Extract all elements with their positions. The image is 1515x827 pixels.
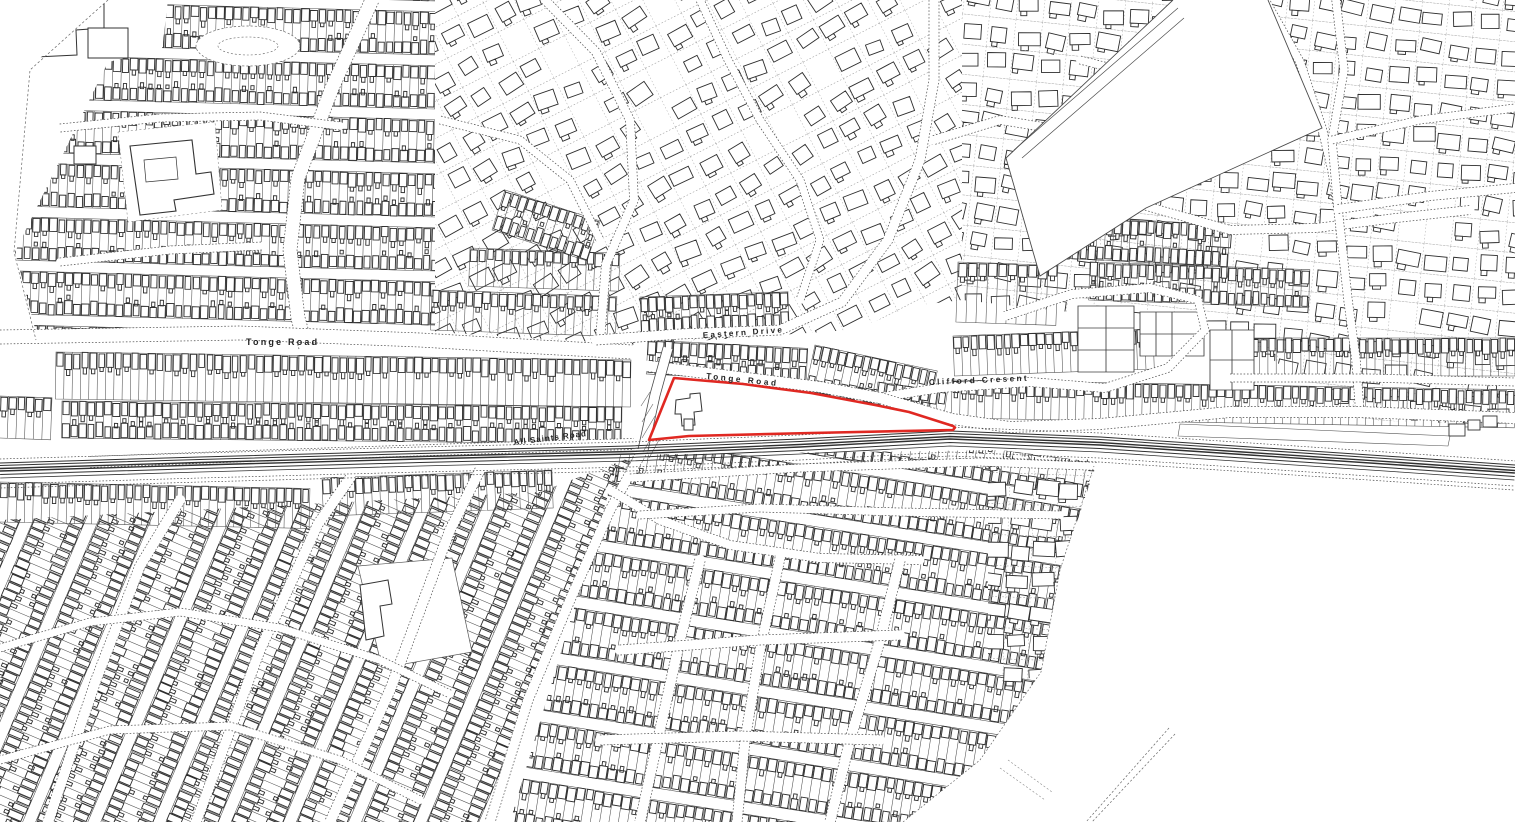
svg-text:Tonge Road: Tonge Road — [246, 337, 319, 347]
